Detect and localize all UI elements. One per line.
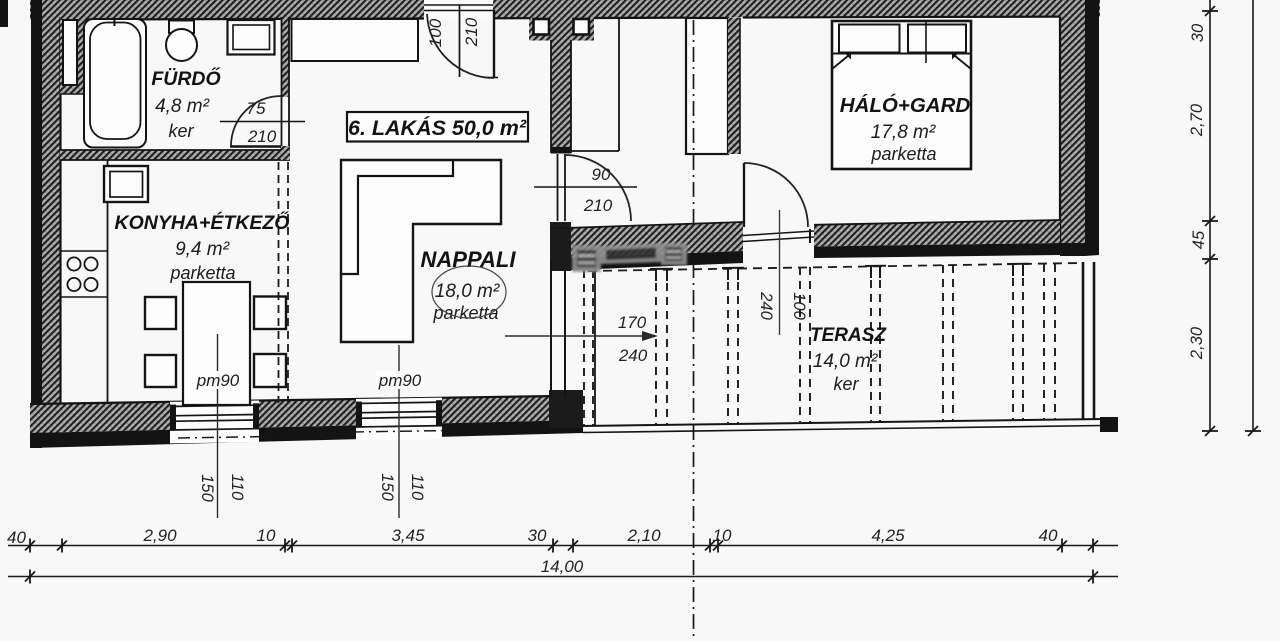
svg-text:240: 240 [618,346,648,365]
svg-text:170: 170 [618,313,647,332]
svg-text:90: 90 [592,165,611,184]
svg-text:150: 150 [198,474,216,502]
svg-text:30: 30 [528,526,547,545]
svg-text:2,90: 2,90 [142,526,177,545]
svg-text:parketta: parketta [432,303,498,323]
svg-text:40: 40 [1039,526,1058,545]
svg-text:100: 100 [426,18,445,47]
svg-text:TERASZ: TERASZ [810,325,887,346]
svg-text:4,8 m²: 4,8 m² [155,96,210,117]
svg-text:100: 100 [790,292,808,320]
svg-text:110: 110 [228,474,246,501]
svg-text:210: 210 [583,196,613,215]
svg-text:ker: ker [833,374,859,394]
svg-text:4,25: 4,25 [871,526,905,545]
svg-text:10: 10 [257,526,276,545]
svg-text:210: 210 [247,127,277,146]
svg-text:3,45: 3,45 [391,526,425,545]
svg-text:240: 240 [757,291,775,320]
svg-text:2,30: 2,30 [1188,326,1206,360]
svg-text:FÜRDŐ: FÜRDŐ [151,67,220,90]
svg-text:9,4 m²: 9,4 m² [175,239,230,260]
svg-text:110: 110 [408,474,426,501]
svg-text:KONYHA+ÉTKEZŐ: KONYHA+ÉTKEZŐ [115,211,290,234]
svg-text:NAPPALI: NAPPALI [421,247,517,272]
svg-text:17,8 m²: 17,8 m² [871,122,936,143]
svg-text:18,0 m²: 18,0 m² [435,281,500,302]
svg-text:pm90: pm90 [196,371,240,390]
svg-text:HÁLÓ+GARD: HÁLÓ+GARD [840,93,971,117]
svg-text:150: 150 [378,473,396,501]
svg-text:10: 10 [713,526,732,545]
svg-text:parketta: parketta [169,263,235,283]
svg-text:14,0 m²: 14,0 m² [813,351,878,372]
svg-text:6. LAKÁS 50,0 m²: 6. LAKÁS 50,0 m² [348,115,527,140]
svg-text:14,00: 14,00 [541,557,584,576]
svg-text:75: 75 [247,99,266,118]
svg-text:30: 30 [1189,23,1207,42]
svg-text:45: 45 [1190,230,1208,249]
svg-text:pm90: pm90 [378,371,422,390]
svg-text:2,10: 2,10 [626,526,661,545]
svg-text:2,70: 2,70 [1188,103,1206,137]
svg-text:40: 40 [7,528,26,547]
svg-text:210: 210 [462,17,481,47]
svg-text:ker: ker [168,121,194,141]
svg-text:parketta: parketta [870,144,936,164]
